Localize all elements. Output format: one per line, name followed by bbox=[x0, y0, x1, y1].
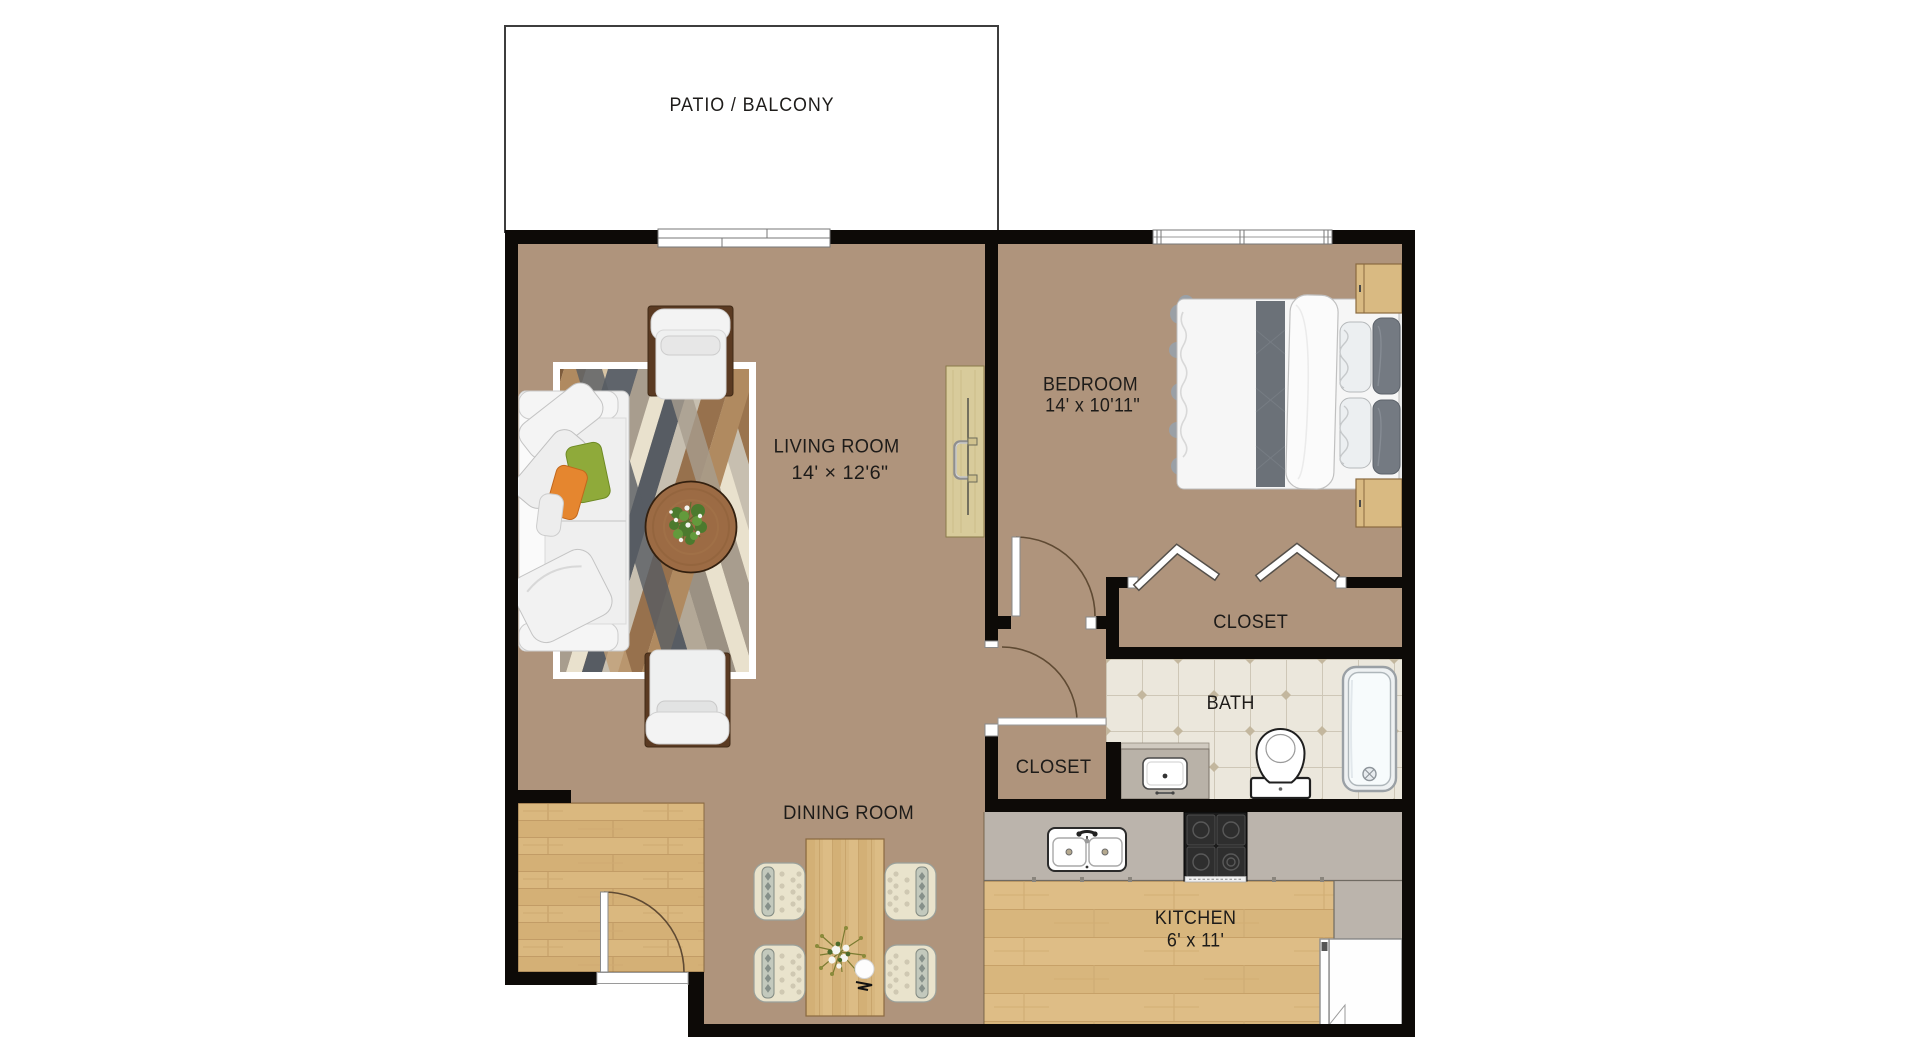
svg-text:CLOSET: CLOSET bbox=[1213, 612, 1288, 633]
svg-text:CLOSET: CLOSET bbox=[1016, 757, 1092, 778]
svg-text:BATH: BATH bbox=[1207, 693, 1255, 714]
svg-text:BEDROOM: BEDROOM bbox=[1043, 375, 1138, 396]
svg-text:6' x 11': 6' x 11' bbox=[1167, 931, 1224, 952]
svg-text:14' × 12'6": 14' × 12'6" bbox=[792, 463, 889, 484]
svg-text:PATIO / BALCONY: PATIO / BALCONY bbox=[670, 94, 835, 116]
svg-text:KITCHEN: KITCHEN bbox=[1155, 908, 1236, 929]
svg-text:LIVING ROOM: LIVING ROOM bbox=[774, 437, 900, 458]
svg-text:14' x 10'11": 14' x 10'11" bbox=[1045, 396, 1140, 417]
svg-text:DINING ROOM: DINING ROOM bbox=[783, 803, 914, 824]
